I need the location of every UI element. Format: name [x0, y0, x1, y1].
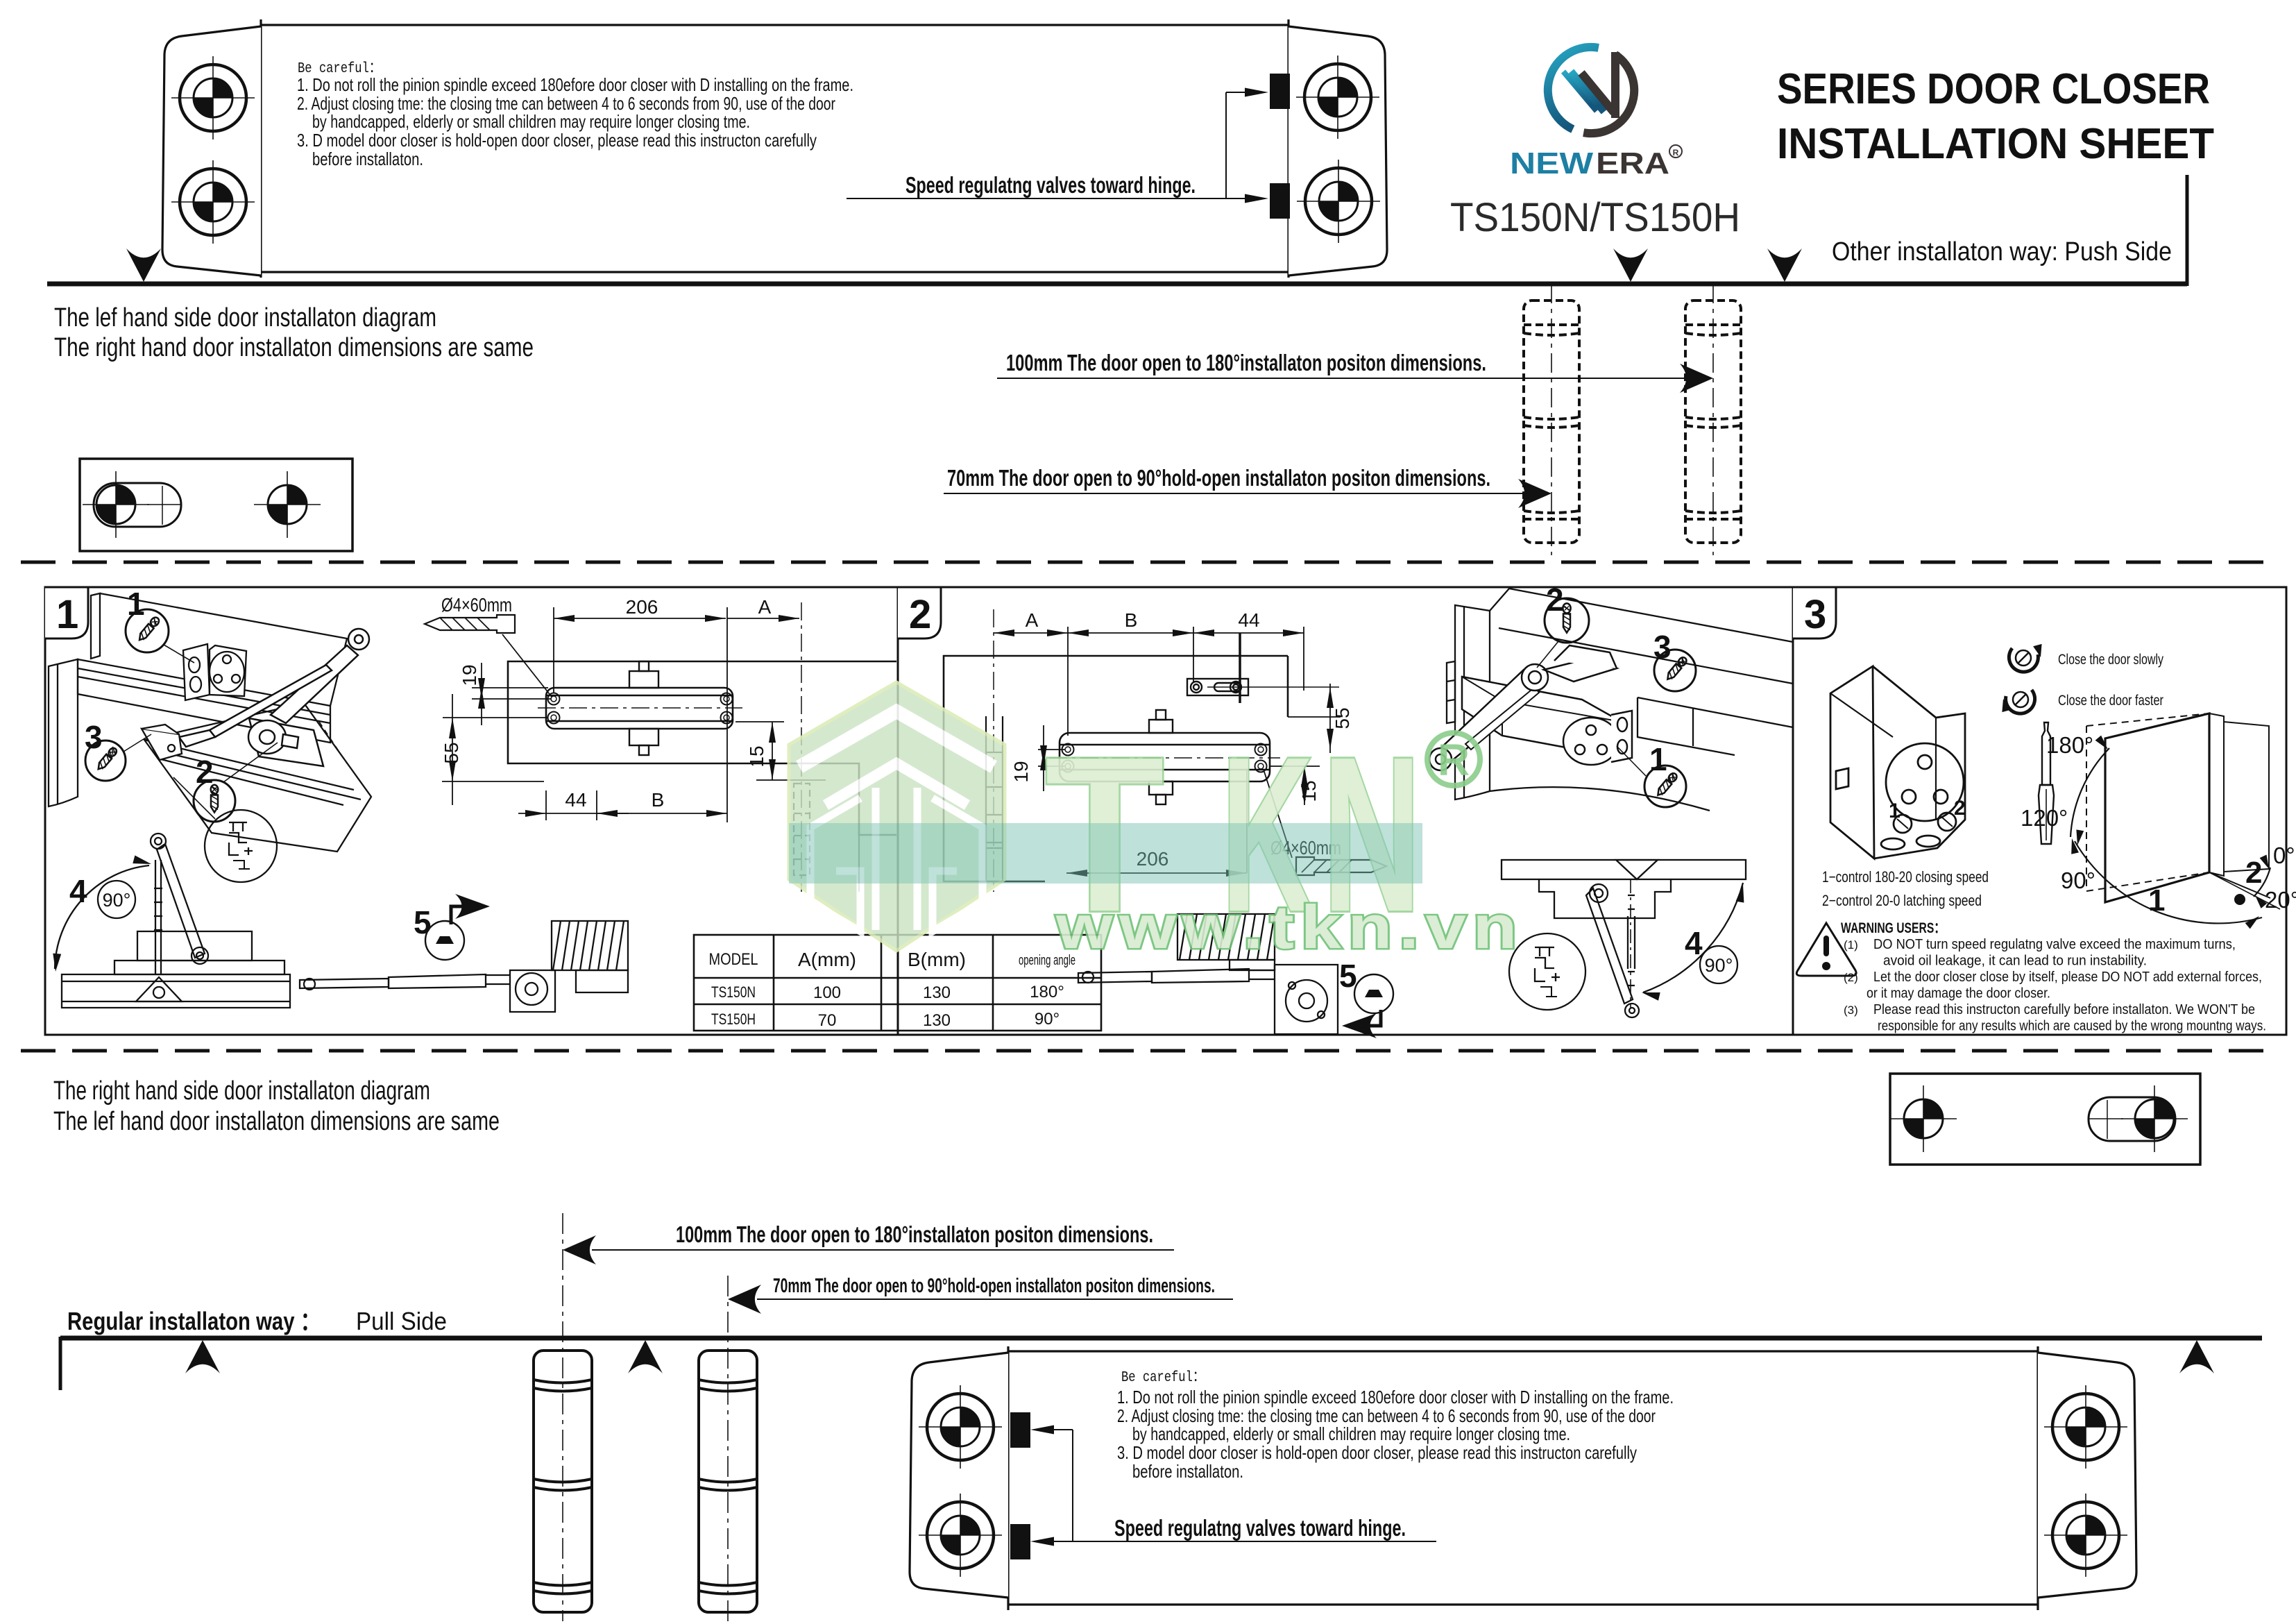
svg-text:ERA: ERA: [1596, 146, 1669, 180]
svg-text:Please read this instructon ca: Please read this instructon carefully be…: [1873, 1001, 2255, 1017]
svg-text:130: 130: [923, 1011, 951, 1030]
svg-text:before installaton.: before installaton.: [312, 149, 423, 169]
svg-text:1: 1: [1649, 741, 1667, 777]
svg-text:or it may damage the door clos: or it may damage the door closer.: [1866, 986, 2050, 1001]
svg-text:120°: 120°: [2021, 805, 2068, 831]
svg-text:R: R: [1438, 735, 1470, 785]
svg-text:180°: 180°: [1030, 983, 1064, 1001]
svg-text:B: B: [652, 789, 665, 811]
svg-text:Pull Side: Pull Side: [356, 1307, 447, 1335]
svg-text:206: 206: [626, 596, 658, 618]
svg-text:SERIES DOOR CLOSER: SERIES DOOR CLOSER: [1777, 65, 2210, 113]
svg-text:3: 3: [1804, 592, 1826, 637]
svg-text:180°: 180°: [2046, 732, 2093, 758]
svg-text:by handcapped, elderly or smal: by handcapped, elderly or small children…: [1132, 1423, 1570, 1444]
svg-text:100mm The door open to 180°ins: 100mm The door open to 180°installaton p…: [1006, 350, 1486, 375]
svg-text:3. D model door closer is hold: 3. D model door closer is hold-open door…: [297, 130, 817, 151]
svg-text:The right hand side door insta: The right hand side door installaton dia…: [53, 1076, 430, 1106]
svg-text:4: 4: [69, 873, 87, 909]
svg-text:5: 5: [1339, 958, 1357, 994]
svg-text:4: 4: [1685, 925, 1703, 961]
svg-text:90°: 90°: [1705, 955, 1733, 976]
svg-text:130: 130: [923, 983, 951, 1002]
svg-text:Speed regulatng valves toward: Speed regulatng valves toward hinge.: [1114, 1515, 1406, 1541]
svg-text:100: 100: [813, 983, 841, 1002]
svg-text:Be careful：: Be careful：: [1121, 1370, 1205, 1386]
svg-text:2−control 20-0 latching speed: 2−control 20-0 latching speed: [1822, 892, 1982, 909]
svg-text:55: 55: [441, 742, 462, 763]
svg-text:avoid oil leakage, it can lead: avoid oil leakage, it can lead to run in…: [1883, 953, 2147, 969]
svg-text:20°: 20°: [2265, 887, 2296, 913]
svg-text:0°: 0°: [2273, 843, 2295, 868]
svg-text:1. Do not roll the pinion spin: 1. Do not roll the pinion spindle exceed…: [297, 74, 853, 95]
svg-text:90°: 90°: [2061, 868, 2095, 893]
svg-text:Speed regulatng valves toward: Speed regulatng valves toward hinge.: [905, 172, 1196, 198]
svg-text:1: 1: [56, 592, 78, 637]
svg-text:Close the door slowly: Close the door slowly: [2058, 652, 2163, 668]
svg-text:2: 2: [2245, 856, 2262, 890]
svg-text:Close the door faster: Close the door faster: [2058, 693, 2163, 709]
svg-text:2: 2: [1546, 582, 1564, 618]
svg-text:3. D model door closer is hold: 3. D model door closer is hold-open door…: [1117, 1442, 1637, 1463]
svg-text:The lef hand side door install: The lef hand side door installaton diagr…: [54, 303, 436, 332]
svg-text:1. Do not roll the pinion spin: 1. Do not roll the pinion spindle exceed…: [1117, 1387, 1674, 1407]
svg-text:44: 44: [565, 789, 586, 811]
svg-text:1−control 180-20 closing speed: 1−control 180-20 closing speed: [1822, 868, 1989, 886]
svg-text:70: 70: [818, 1011, 837, 1030]
svg-text:The lef hand door installaton: The lef hand door installaton dimensions…: [53, 1107, 500, 1136]
svg-text:2: 2: [909, 592, 931, 637]
svg-text:TS150N/TS150H: TS150N/TS150H: [1450, 195, 1740, 240]
svg-text:19: 19: [1010, 761, 1032, 782]
svg-text:www.tkn.vn: www.tkn.vn: [1055, 893, 1524, 961]
svg-text:19: 19: [459, 664, 480, 686]
svg-text:(3): (3): [1844, 1004, 1858, 1017]
svg-text:R: R: [1673, 148, 1679, 158]
svg-text:100mm The door open to 180°ins: 100mm The door open to 180°installaton p…: [676, 1221, 1153, 1247]
svg-text:3: 3: [85, 719, 103, 755]
svg-text:2: 2: [196, 754, 214, 790]
svg-text:2: 2: [1954, 797, 1966, 820]
svg-text:1: 1: [2148, 883, 2165, 917]
svg-text:B(mm): B(mm): [908, 949, 966, 970]
svg-text:A: A: [758, 596, 772, 618]
svg-text:responsible for any results wh: responsible for any results which are ca…: [1878, 1018, 2266, 1034]
svg-text:B: B: [1125, 609, 1138, 631]
svg-text:TS150H: TS150H: [711, 1010, 756, 1028]
svg-text:Other installaton way: Push Si: Other installaton way: Push Side: [1832, 237, 2172, 267]
svg-text:A: A: [1026, 609, 1039, 631]
svg-text:WARNING USERS：: WARNING USERS：: [1841, 920, 1945, 936]
svg-text:INSTALLATION SHEET: INSTALLATION SHEET: [1777, 120, 2214, 168]
svg-text:70mm The door open to 90°hold-: 70mm The door open to 90°hold-open insta…: [947, 465, 1490, 491]
svg-text:NEW: NEW: [1510, 146, 1594, 180]
svg-text:Ø4×60mm: Ø4×60mm: [441, 594, 512, 616]
svg-text:44: 44: [1238, 609, 1259, 631]
svg-text:1: 1: [1889, 800, 1900, 822]
svg-text:by handcapped, elderly or smal: by handcapped, elderly or small children…: [312, 111, 750, 132]
svg-text:1: 1: [127, 586, 145, 622]
svg-text:90°: 90°: [1035, 1010, 1060, 1029]
svg-text:Regular installaton way ：: Regular installaton way ：: [67, 1307, 321, 1335]
svg-text:TS150N: TS150N: [711, 983, 756, 1001]
svg-text:MODEL: MODEL: [709, 950, 758, 969]
svg-text:5: 5: [414, 904, 432, 940]
svg-text:A(mm): A(mm): [798, 949, 856, 970]
svg-text:90°: 90°: [103, 890, 131, 911]
svg-text:70mm The door open to 90°hold-: 70mm The door open to 90°hold-open insta…: [773, 1275, 1215, 1297]
svg-text:3: 3: [1653, 629, 1672, 665]
svg-text:Let the door closer close by i: Let the door closer close by itself, ple…: [1873, 969, 2262, 985]
svg-text:15: 15: [746, 745, 767, 767]
svg-text:The right hand door installato: The right hand door installaton dimensio…: [54, 333, 534, 362]
svg-text:(2): (2): [1844, 971, 1858, 984]
svg-text:DO NOT turn speed regulatng va: DO NOT turn speed regulatng valve exceed…: [1873, 936, 2236, 952]
svg-text:before installaton.: before installaton.: [1132, 1461, 1243, 1482]
svg-text:(1): (1): [1844, 938, 1858, 951]
